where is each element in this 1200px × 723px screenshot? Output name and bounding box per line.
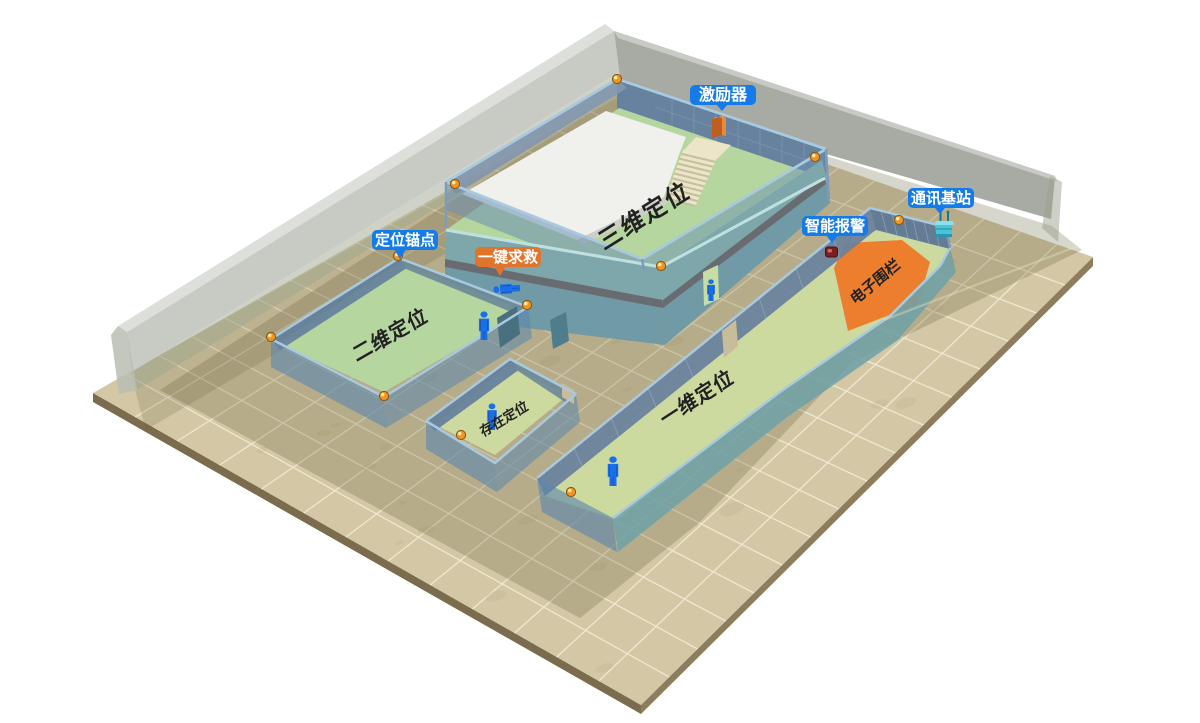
svg-text:激励器: 激励器: [699, 85, 748, 104]
svg-text:智能报警: 智能报警: [805, 217, 865, 235]
svg-text:一键求救: 一键求救: [478, 248, 538, 266]
svg-text:定位锚点: 定位锚点: [375, 231, 435, 249]
svg-text:通讯基站: 通讯基站: [911, 189, 971, 207]
